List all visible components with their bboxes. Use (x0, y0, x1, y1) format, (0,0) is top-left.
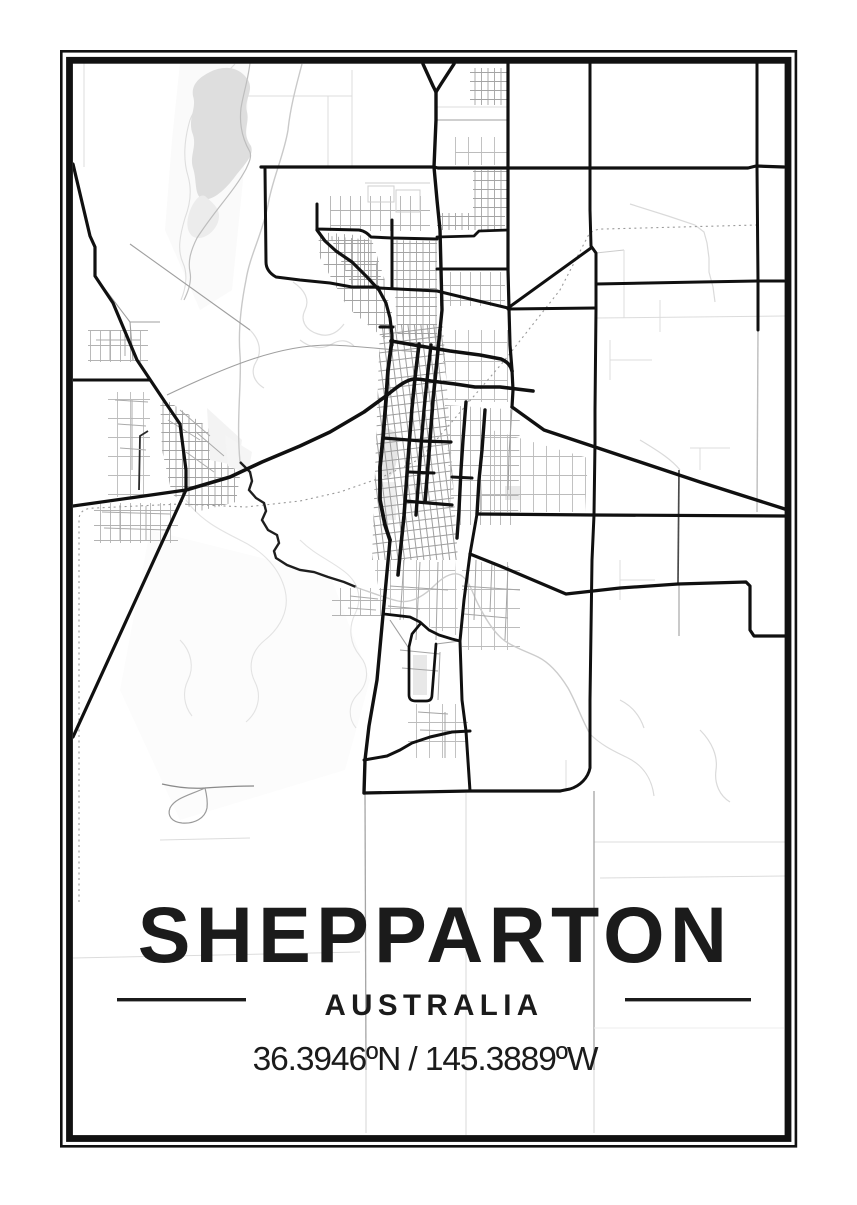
svg-text:SHEPPARTON: SHEPPARTON (138, 890, 732, 979)
svg-text:36.3946ºN / 145.3889ºW: 36.3946ºN / 145.3889ºW (253, 1041, 599, 1078)
svg-text:AUSTRALIA: AUSTRALIA (324, 989, 543, 1022)
